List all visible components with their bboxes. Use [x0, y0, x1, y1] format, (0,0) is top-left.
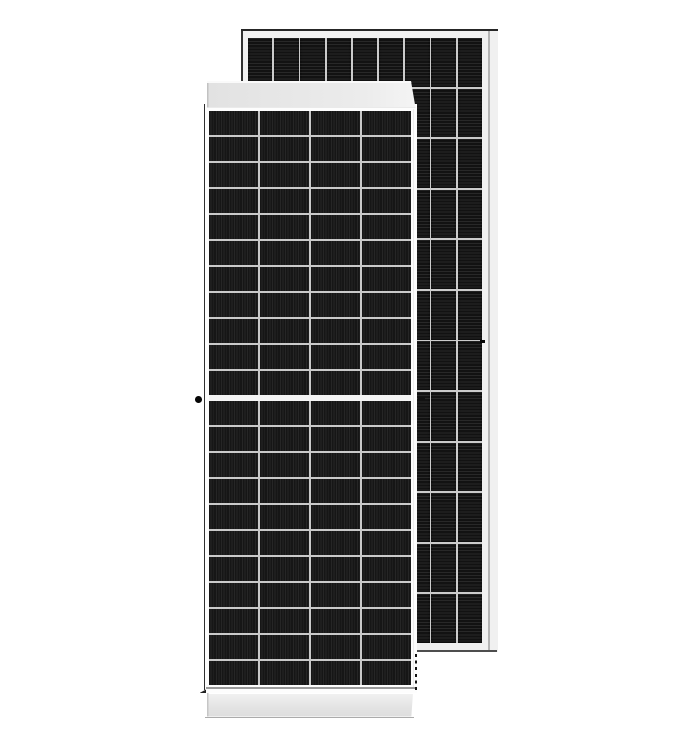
front-module-dashed-right-edge [415, 654, 417, 691]
solar-cell [362, 401, 411, 425]
solar-cell [458, 443, 482, 492]
solar-cell [209, 345, 258, 369]
solar-cell [260, 479, 309, 503]
solar-cell [458, 493, 482, 542]
solar-cell [431, 139, 455, 188]
solar-cell [260, 505, 309, 529]
solar-cell [311, 583, 360, 607]
solar-cell [458, 341, 482, 390]
solar-cell [311, 189, 360, 213]
front-module-cell-area [209, 111, 411, 686]
solar-cell [311, 635, 360, 659]
solar-cell [431, 493, 455, 542]
solar-cell [260, 453, 309, 477]
solar-cell [458, 594, 482, 643]
solar-cell [260, 215, 309, 239]
solar-cell [311, 345, 360, 369]
solar-cell [311, 163, 360, 187]
solar-cell [311, 371, 360, 395]
solar-cell [311, 453, 360, 477]
solar-cell [458, 139, 482, 188]
solar-cell [362, 163, 411, 187]
solar-cell [260, 241, 309, 265]
solar-cell [379, 38, 403, 87]
solar-cell [311, 319, 360, 343]
solar-cell [311, 111, 360, 135]
solar-cell [458, 38, 482, 87]
solar-cell [405, 38, 429, 87]
solar-cell [362, 583, 411, 607]
solar-cell [362, 319, 411, 343]
front-module-cell-grid-bottom-half [209, 401, 411, 686]
solar-cell [362, 505, 411, 529]
solar-cell [311, 293, 360, 317]
front-module-bottom-frame-bar [207, 693, 414, 717]
solar-cell [260, 163, 309, 187]
solar-cell [311, 479, 360, 503]
solar-cell [209, 371, 258, 395]
solar-cell [362, 371, 411, 395]
solar-cell [209, 427, 258, 451]
solar-cell [260, 401, 309, 425]
solar-cell [353, 38, 377, 87]
solar-cell [431, 190, 455, 239]
front-module-grounding-hole [195, 396, 202, 403]
solar-cell [311, 661, 360, 685]
solar-cell [362, 427, 411, 451]
front-module-drain-slot-dash [418, 397, 425, 400]
solar-cell [431, 443, 455, 492]
solar-cell [311, 401, 360, 425]
solar-cell [260, 609, 309, 633]
solar-cell [458, 392, 482, 441]
solar-cell [458, 291, 482, 340]
solar-cell [209, 401, 258, 425]
solar-cell [327, 38, 351, 87]
solar-cell [209, 319, 258, 343]
solar-cell [209, 635, 258, 659]
solar-cell [362, 111, 411, 135]
solar-cell [209, 583, 258, 607]
solar-cell [362, 531, 411, 555]
solar-cell [311, 505, 360, 529]
solar-cell [431, 89, 455, 138]
solar-cell [209, 111, 258, 135]
solar-cell [209, 189, 258, 213]
solar-cell [362, 661, 411, 685]
solar-cell [209, 293, 258, 317]
solar-cell [431, 291, 455, 340]
solar-cell [260, 427, 309, 451]
solar-cell [260, 583, 309, 607]
front-module-cell-grid-top-half [209, 111, 411, 395]
solar-cell [260, 293, 309, 317]
solar-cell [274, 38, 298, 87]
solar-cell [260, 557, 309, 581]
solar-cell [431, 38, 455, 87]
front-module-right-margin-line [413, 109, 414, 687]
solar-cell [260, 371, 309, 395]
solar-cell [362, 479, 411, 503]
solar-cell [209, 267, 258, 291]
solar-cell [458, 89, 482, 138]
product-image-stage [0, 0, 684, 748]
solar-cell [362, 557, 411, 581]
solar-cell [362, 635, 411, 659]
solar-cell [458, 240, 482, 289]
solar-cell [431, 341, 455, 390]
solar-cell [209, 241, 258, 265]
solar-cell [362, 293, 411, 317]
solar-cell [362, 345, 411, 369]
solar-cell [209, 163, 258, 187]
front-module-left-frame-edge [204, 104, 206, 690]
solar-cell [209, 505, 258, 529]
solar-cell [362, 137, 411, 161]
solar-cell [311, 609, 360, 633]
front-module-top-frame-bar [207, 81, 416, 108]
solar-cell [362, 609, 411, 633]
solar-cell [311, 427, 360, 451]
solar-cell [362, 267, 411, 291]
solar-cell [209, 479, 258, 503]
solar-cell [362, 453, 411, 477]
solar-cell [260, 635, 309, 659]
rear-module-grounding-dash [480, 340, 485, 343]
solar-cell [311, 241, 360, 265]
solar-cell [260, 345, 309, 369]
solar-cell [362, 215, 411, 239]
solar-cell [311, 137, 360, 161]
solar-cell [209, 609, 258, 633]
solar-cell [260, 111, 309, 135]
solar-cell [209, 661, 258, 685]
solar-cell [311, 267, 360, 291]
solar-cell [362, 189, 411, 213]
solar-cell [311, 215, 360, 239]
solar-cell [209, 453, 258, 477]
solar-cell [311, 531, 360, 555]
solar-cell [209, 531, 258, 555]
solar-cell [431, 544, 455, 593]
solar-cell [458, 544, 482, 593]
front-module-bottom-glass-edge [206, 687, 417, 689]
solar-cell [431, 392, 455, 441]
front-module-bottom-bar-shadow [205, 717, 414, 719]
front-solar-module-glass [204, 104, 418, 693]
rear-module-frame-side-face [488, 31, 498, 650]
solar-cell [362, 241, 411, 265]
solar-cell [300, 38, 324, 87]
solar-cell [431, 240, 455, 289]
solar-cell [458, 190, 482, 239]
solar-cell [248, 38, 272, 87]
solar-cell [260, 137, 309, 161]
solar-cell [209, 557, 258, 581]
solar-cell [311, 557, 360, 581]
solar-cell [209, 137, 258, 161]
solar-cell [260, 531, 309, 555]
solar-cell [209, 215, 258, 239]
solar-cell [260, 189, 309, 213]
solar-cell [431, 594, 455, 643]
solar-cell [260, 319, 309, 343]
solar-cell [260, 661, 309, 685]
solar-cell [260, 267, 309, 291]
